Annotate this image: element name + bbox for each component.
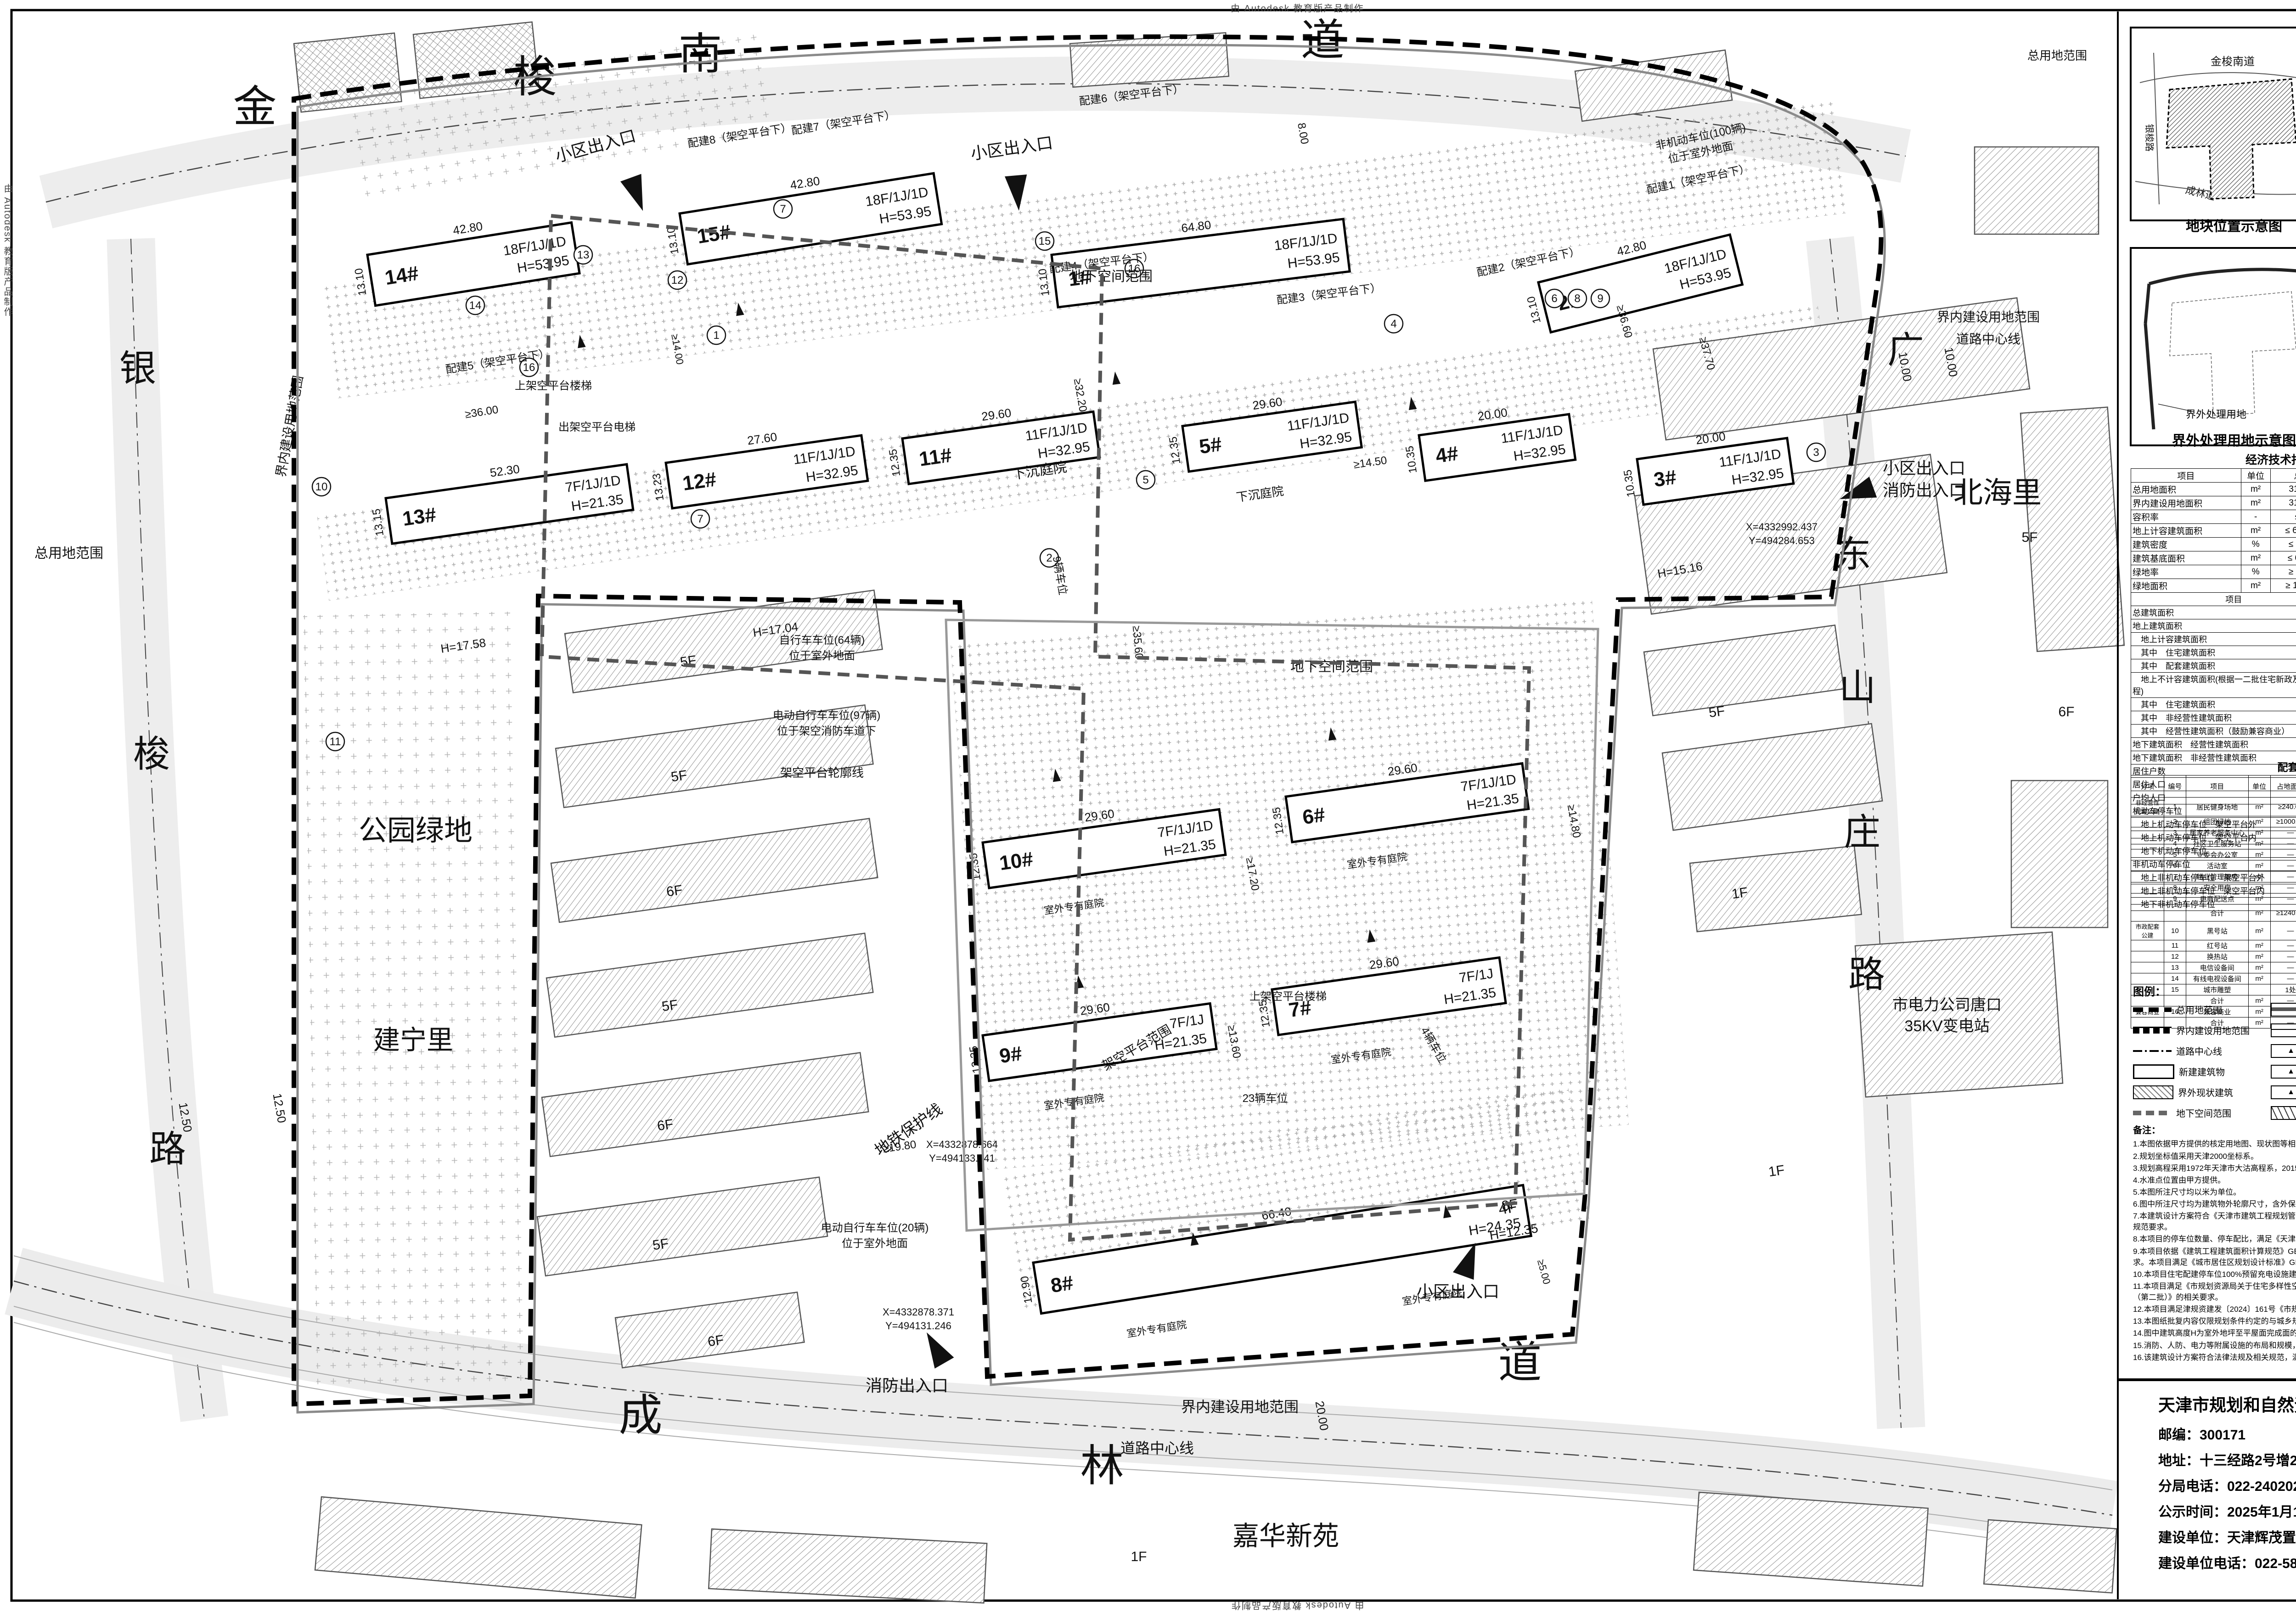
building-id: 8#	[1049, 1271, 1075, 1297]
legend-item: 机动车位停车位	[2271, 1102, 2296, 1123]
legend-symbol: ▲	[2271, 1044, 2296, 1058]
plan-label: 银梭路	[2144, 124, 2155, 152]
plan-label: 5F	[670, 768, 688, 785]
table-row: 6活动室m² —≥300.00≥0 300.00 00	[2131, 860, 2296, 871]
plan-label: 小区出入口	[969, 133, 1054, 163]
table-row: 地上计容建筑面积m²≤ 62981.00 ≤ 0.00≤ 62981.00≤ 0…	[2131, 524, 2296, 538]
legend-title: 图例：	[2133, 983, 2296, 999]
plan-label: 位于室外地面	[842, 1237, 908, 1250]
legend-symbol	[2133, 1064, 2174, 1079]
plan-label: 北海里	[1953, 476, 2042, 509]
note-line: 7.本建筑设计方案符合《天津市建筑工程规划管理技术规范》DB12/T 1040-…	[2133, 1211, 2296, 1233]
facility-number-text: 7	[780, 203, 786, 215]
building-id: 6#	[1301, 804, 1326, 829]
entrance-arrow-icon	[917, 1327, 954, 1369]
legend: 图例： 总用地范围界内建设用地范围道路中心线新建建筑物界外现状建筑地下空间范围 …	[2133, 983, 2296, 1120]
facility-number-text: 11	[330, 736, 341, 748]
existing-building	[615, 1292, 804, 1368]
plan-label: ≥32.20	[1071, 377, 1089, 413]
plan-label: 界内建设用地范围	[1181, 1399, 1299, 1415]
table-row: 其中 非经营性建筑面积m²≤ 19880.00	[2131, 711, 2296, 725]
plan-label: Y=494284.653	[1749, 535, 1815, 546]
facility-number-text: 9	[1597, 292, 1603, 305]
facility-number: 10	[312, 478, 331, 496]
entrance-arrow-icon	[620, 174, 653, 215]
facility-number-text: 13	[577, 249, 590, 261]
plan-label: 市电力公司唐口	[1892, 996, 2002, 1014]
watermark-top: 由 Autodesk 教育版产品制作	[1231, 1, 1364, 14]
contact-line: 分局电话：022-24020235	[2158, 1475, 2296, 1495]
plan-label: 6F	[665, 882, 683, 900]
table1-title: 经济技术指标表（居住类）	[2131, 451, 2296, 467]
building-id: 3#	[1652, 466, 1677, 491]
plan-label: 室外专有庭院	[1126, 1319, 1187, 1339]
table2-header1: 分项编号 项目单位 占地面积地上面积 地下面积许可进度	[2131, 776, 2296, 787]
entrance-arrow-icon	[1111, 371, 1120, 385]
legend-symbol: ▲	[2271, 1085, 2296, 1099]
legend-symbol	[2133, 1085, 2173, 1099]
table-row: 11红号站m² —≥150.00≥0 150.00 00	[2131, 940, 2296, 951]
plan-label: 6F	[707, 1332, 725, 1350]
existing-building	[1984, 1520, 2116, 1593]
plan-label: X=4332878.664	[926, 1139, 998, 1150]
note-line: 13.本图纸批复内容仅限规划条件约定的与城乡规划相关内容。	[2133, 1316, 2296, 1327]
minimap-location	[2135, 46, 2296, 204]
plan-label: 5F	[661, 997, 679, 1015]
table-row: 绿地率%≥ 35.00%	[2131, 565, 2296, 579]
table-row: 8安全用房m² —≥30.00≥0 30.00 00	[2131, 882, 2296, 894]
notes: 备注： 1.本图依据甲方提供的核定用地图、现状图等相关资料所绘制。2.规划坐标值…	[2133, 1124, 2296, 1364]
table1: 项目单位 总指标已发证指标 本次申报指标审批后剩余指标 总用地面积m²31490…	[2131, 468, 2296, 593]
table-row: 地上不计容建筑面积(根据一二批住宅新政及控规规程)m²≤ 25323.00	[2131, 673, 2296, 698]
building-id: 13#	[401, 503, 438, 530]
building-dim: 13.10	[1525, 295, 1543, 325]
plan-label: 6F	[2058, 704, 2074, 719]
plan-label: Y=494133.341	[929, 1152, 995, 1164]
facility-number: 1	[707, 326, 726, 344]
plan-label: X=4332992.437	[1746, 521, 1818, 533]
facility-number: 14	[466, 296, 484, 315]
building-dim: 10.35	[1403, 445, 1419, 474]
table-row: 建筑密度%≤ 20.00%	[2131, 538, 2296, 551]
existing-building	[1690, 846, 1862, 932]
plan-label: 路	[1848, 954, 1885, 995]
plan-label: 上架空平台楼梯	[515, 380, 592, 392]
table-row: 合计m² ≥1240.00≥1410.00≥0 地上面积:1410 占地面积:1…	[2131, 905, 2296, 922]
facility-number: 12	[668, 271, 687, 289]
plan-label: 位于架空消防车道下	[777, 725, 876, 737]
plan-label: 道路中心线	[1956, 332, 2020, 346]
plan-label: 总用地范围	[2027, 49, 2087, 62]
facility-number: 13	[574, 246, 592, 264]
facility-number: 11	[326, 732, 344, 751]
plan-label: 银	[119, 348, 156, 389]
table-row: 非经营性配套公建 1居民健身场地m² ≥240.00—≥0 240.00 00	[2131, 798, 2296, 816]
plan-label: 35KV变电站	[1904, 1017, 1989, 1035]
table1-header: 项目单位 总指标已发证指标 本次申报指标审批后剩余指标	[2131, 469, 2296, 483]
table2-title: 配套公建一览表	[2131, 759, 2296, 774]
existing-building	[2020, 407, 2124, 652]
plan-label: 8.00	[1295, 122, 1311, 145]
plan-label: 4F	[1497, 1198, 1518, 1218]
legend-item: 界内建设用地范围	[2133, 1020, 2250, 1040]
plan-label: 9辆车位	[1050, 555, 1069, 596]
facility-number-text: 14	[469, 299, 482, 312]
facility-number: 9	[1591, 289, 1609, 308]
legend-symbol	[2271, 1023, 2296, 1037]
plan-label: 5F	[652, 1236, 670, 1253]
minimap-offsite-leader: 界外处理用地	[2186, 406, 2246, 421]
note-line: 6.图中所注尺寸均为建筑物外轮廓尺寸，含外保温、外饰面。	[2133, 1199, 2296, 1210]
legend-item: 道路中心线	[2133, 1040, 2250, 1061]
table-row: 总建筑面积m²≤ 100814.00	[2131, 606, 2296, 619]
plan-label: 消防出入口	[1883, 481, 1965, 500]
building-id: 12#	[681, 468, 718, 495]
plan-label: 界内建设用地范围	[1937, 310, 2040, 324]
legend-item: ▲建筑出入口	[2271, 1040, 2296, 1061]
plan-label: 小区出入口	[1883, 459, 1965, 478]
existing-building	[315, 1497, 642, 1598]
table1b-header: 项目单位本次申报指标	[2131, 593, 2296, 606]
table-row: 地上建筑面积m²≤ 88304.00	[2131, 619, 2296, 633]
table-row: 2组团绿地m² ≥1000.00—≥0 1000.00 00	[2131, 816, 2296, 827]
building-id: 5#	[1198, 433, 1223, 458]
plan-label: ≥14.50	[1353, 454, 1388, 471]
contact-line: 公示时间：2025年1月16日——2025年1月24日	[2158, 1501, 2296, 1521]
facility-number-text: 3	[1813, 446, 1819, 459]
note-line: 1.本图依据甲方提供的核定用地图、现状图等相关资料所绘制。	[2133, 1139, 2296, 1150]
building-id: 9#	[998, 1042, 1023, 1068]
plan-label: 总用地范围	[34, 546, 103, 561]
facility-number-text: 5	[1142, 474, 1148, 486]
green-area	[303, 612, 532, 1387]
existing-building	[1644, 625, 1844, 716]
table-row: 地上计容建筑面积m²≤ 62981.00	[2131, 633, 2296, 646]
facility-number: 4	[1384, 315, 1403, 333]
plan-label: 电动自行车车位(20辆)	[821, 1222, 929, 1234]
legend-item: 界外现状建筑	[2133, 1082, 2250, 1102]
table-row: 5业委会办公室m² —≥30.00≥0 30.00 00	[2131, 849, 2296, 860]
note-line: 4.水准点位置由甲方提供。	[2133, 1175, 2296, 1186]
table-row: 13电信设备间m² —≥25.00≥0 25.00 00	[2131, 962, 2296, 973]
plan-label: 下沉庭院	[1235, 484, 1284, 504]
legend-item: ▲小区出入口	[2271, 1082, 2296, 1102]
plan-label: 梭	[133, 734, 170, 775]
facility-number-text: 12	[671, 274, 684, 287]
plan-label: 成	[619, 1391, 662, 1440]
facility-number: 15	[1035, 232, 1054, 250]
note-line: 9.本项目依据《建筑工程建筑面积计算规范》GB/T 50353-2013计算建筑…	[2133, 1246, 2296, 1268]
table-row: 市政配套公建 10黑号站m² —≥388.00≥0 388.00 00	[2131, 922, 2296, 940]
existing-building	[1975, 147, 2099, 234]
facility-number: 7	[691, 510, 709, 528]
building-dim: 42.80	[789, 174, 821, 192]
plan-label: 出架空平台电梯	[558, 421, 636, 433]
table-row: 3居家养老服务中心m² —≥500.00≥0 500.00	[2131, 827, 2296, 838]
table-row: 9电商配送点m² —≥20.00≥0 20.00 00	[2131, 894, 2296, 905]
plan-label: Y=494131.246	[885, 1320, 951, 1332]
facility-number-text: 4	[1390, 318, 1396, 330]
plan-label: 界内建设用地范围	[274, 374, 305, 478]
plan-label: 建宁里	[373, 1025, 453, 1055]
building-id: 11#	[917, 444, 953, 471]
contact-line: 建设单位：天津辉茂置业有限公司	[2158, 1526, 2296, 1546]
plan-label: 金	[233, 83, 276, 131]
facility-number-text: 1	[713, 329, 719, 342]
facility-number: 8	[1568, 289, 1587, 308]
plan-label: 1F	[1767, 1163, 1785, 1180]
table-row: 12换热站m² —≥200.00≥0 200.00 00	[2131, 951, 2296, 962]
legend-symbol	[2133, 1111, 2172, 1115]
facility-number-text: 15	[1039, 235, 1051, 247]
legend-item: 总用地范围	[2133, 999, 2250, 1020]
existing-building	[551, 819, 878, 922]
plan-label: 道路中心线	[1120, 1440, 1194, 1456]
legend-symbol	[2133, 1027, 2172, 1034]
plan-label: 配建3（架空平台下）	[1276, 281, 1382, 307]
table-row: 界内建设用地面积m²31490.70 0.0031490.700.00	[2131, 496, 2296, 510]
existing-building	[542, 1053, 868, 1157]
plan-label: 金梭南道	[2211, 56, 2255, 68]
table-row: 其中 经营性建筑面积（鼓励兼容商业）m²≤ 500.00	[2131, 725, 2296, 738]
building-dim: 27.60	[746, 430, 778, 448]
existing-building	[709, 1529, 987, 1603]
legend-item: 区内道路	[2271, 1020, 2296, 1040]
facility-number-text: 8	[1574, 292, 1580, 305]
legend-symbol	[2133, 1007, 2172, 1012]
existing-building	[1855, 932, 2063, 1097]
table-row: 其中 住宅建筑面积m²≤ 4943.00	[2131, 698, 2296, 711]
plan-label: 电动自行车车位(97辆)	[773, 709, 881, 722]
plan-label: 林	[1080, 1442, 1124, 1490]
note-line: 16.该建筑设计方案符合法律法规及相关规范，满足规划条件及相关标准和技术要求。	[2133, 1352, 2296, 1363]
existing-building	[537, 1177, 827, 1276]
plan-label: 路	[149, 1129, 186, 1169]
note-line: 8.本项目的停车位数量、停车配比，满足《天津市建设项目配建停车场（库）标准》(D…	[2133, 1234, 2296, 1245]
legend-item: 地下空间范围	[2133, 1102, 2250, 1123]
facility-number-text: 7	[697, 513, 703, 525]
table-row: 4社区卫生服务站m² —≥230.00≥0 230.00	[2131, 838, 2296, 849]
minimap-location-caption: 地块位置示意图	[2133, 215, 2296, 235]
plan-label: 5F	[2021, 530, 2037, 545]
note-line: 14.图中建筑高度H为室外地坪至平屋面完成面的高度。	[2133, 1328, 2296, 1339]
legend-item: 架空平台范围	[2271, 999, 2296, 1020]
existing-building	[546, 933, 873, 1037]
facility-number: 5	[1137, 471, 1155, 489]
contact-block: 天津市规划和自然资源局河东分局 邮编：300171地址：十三经路2号增2号分局电…	[2158, 1391, 2296, 1578]
note-line: 15.消防、人防、电力等附属设施的布局和规模，均以相关部门审批结果为准。	[2133, 1340, 2296, 1351]
watermark-left: 由 Autodesk 教育版产品制作	[1, 184, 14, 317]
table-row: 7物业管理用房m² —≥300.00≥0 300.00 00	[2131, 871, 2296, 882]
plan-label: 5F	[1708, 703, 1726, 721]
plan-label: 山	[1839, 667, 1876, 708]
facility-number: 6	[1545, 289, 1564, 308]
plan-label: 6F	[656, 1117, 674, 1134]
note-line: 5.本图所注尺寸均以米为单位。	[2133, 1187, 2296, 1198]
plan-label: 消防出入口	[866, 1376, 948, 1395]
building-dim: 52.30	[489, 462, 521, 480]
plan-label: 位于室外地面	[789, 650, 855, 662]
note-line: 3.规划高程采用1972年天津市大沽高程系，2015年高程。	[2133, 1163, 2296, 1174]
plan-label: ≥36.00	[464, 404, 500, 421]
table-row: 容积率-≤ 2.00	[2131, 510, 2296, 524]
note-line: 11.本项目满足《市规划资源局关于住宅多样性空间增值利用规划管理的指导意见（试行…	[2133, 1281, 2296, 1303]
plan-label: 1F	[1731, 885, 1749, 902]
building-dim: 10.35	[1621, 469, 1638, 498]
agency-name: 天津市规划和自然资源局河东分局	[2158, 1391, 2296, 1416]
legend-symbol: ▲	[2271, 1065, 2296, 1079]
table-row: 其中 配套建筑面积m²≤ 0.00	[2131, 659, 2296, 673]
plan-label: 公园绿地	[359, 815, 473, 847]
legend-symbol	[2271, 1003, 2296, 1017]
building-id: 10#	[998, 848, 1035, 875]
building-dim: 42.80	[452, 219, 484, 237]
minimap-offsite-caption: 界外处理用地示意图	[2133, 429, 2296, 450]
plan-label: 1F	[1131, 1549, 1147, 1564]
plan-label: 嘉华新苑	[1232, 1521, 1339, 1551]
plan-label: 上架空平台楼梯	[1249, 990, 1327, 1003]
plan-label: 架空平台轮廓线	[780, 766, 864, 780]
table-row: 绿地面积m²≥ 11021.75 ≥ 0.00≥ 11021.75≥ 0.00	[2131, 579, 2296, 593]
table-row: 总用地面积m²31490.70 0.0031490.700.00	[2131, 483, 2296, 496]
facility-number: 7	[774, 200, 792, 218]
legend-symbol	[2271, 1106, 2296, 1120]
note-line: 2.规划坐标值采用天津2000坐标系。	[2133, 1151, 2296, 1162]
minimap-offsite	[2145, 270, 2296, 429]
existing-building	[2011, 781, 2108, 927]
contact-line: 地址：十三经路2号增2号	[2158, 1449, 2296, 1469]
legend-item: 新建建筑物	[2133, 1061, 2250, 1082]
plan-label: 庄	[1844, 812, 1880, 853]
building-id: 4#	[1434, 442, 1459, 467]
legend-symbol	[2133, 1050, 2172, 1052]
contact-line: 邮编：300171	[2158, 1423, 2296, 1444]
contact-line: 建设单位电话：022-58677678	[2158, 1552, 2296, 1572]
facility-number-text: 10	[315, 481, 328, 493]
facility-number: 3	[1807, 443, 1825, 461]
facility-number-text: 6	[1551, 292, 1557, 305]
plan-label: 自行车车位(64辆)	[779, 634, 865, 646]
note-line: 12.本项目满足津规资建发〔2024〕161号《市规划资源局 市住房城乡建设委关…	[2133, 1304, 2296, 1315]
table-row: 建筑基底面积m²≤ 6298.14 ≤ 0.00≤ 6298.14≤ 0.00	[2131, 551, 2296, 565]
plan-label: ≥5.00	[1535, 1258, 1553, 1286]
note-line: 10.本项目住宅配建停车位100%预留充电设施建设安装条件。	[2133, 1269, 2296, 1280]
site-plan-drawing: 14#18F/1J/1DH=53.9542.8013.1015#18F/1J/1…	[0, 0, 2296, 1611]
site-plan-sheet: { "watermark": "由 Autodesk 教育版产品制作", "ti…	[0, 0, 2296, 1611]
existing-building	[1694, 1492, 1928, 1586]
table-row: 地下建筑面积 经营性建筑面积m²≤ 0.00	[2131, 738, 2296, 751]
plan-label: 23辆车位	[1243, 1092, 1288, 1105]
legend-item: ▲地下车库出入口	[2271, 1061, 2296, 1082]
plan-label: X=4332878.371	[883, 1306, 954, 1318]
notes-title: 备注：	[2133, 1124, 2296, 1137]
plan-label: 5F	[679, 653, 697, 670]
table-row: 其中 住宅建筑面积m²≤ 62981.00	[2131, 646, 2296, 659]
plan-label: 12.50	[270, 1092, 289, 1124]
